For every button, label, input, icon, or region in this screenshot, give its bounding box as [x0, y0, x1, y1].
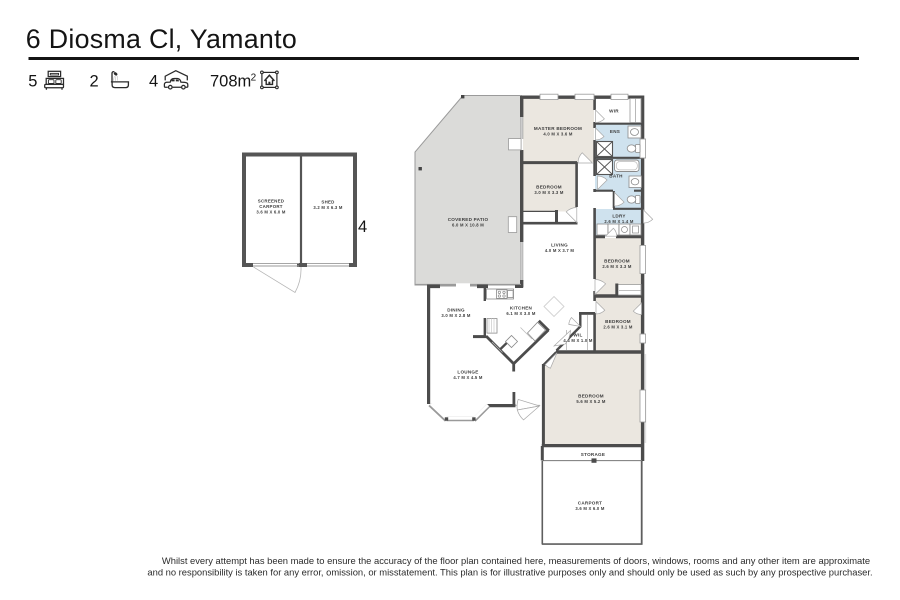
svg-text:6.0 M X 10.8 M: 6.0 M X 10.8 M [452, 223, 484, 228]
svg-text:2: 2 [251, 73, 257, 84]
svg-text:LIVING: LIVING [551, 243, 568, 248]
svg-text:708m: 708m [210, 73, 251, 91]
svg-text:BATH: BATH [609, 174, 623, 179]
svg-text:3.0 M X 3.3 M: 3.0 M X 3.3 M [534, 190, 564, 195]
svg-text:4.4 M X 1.0 M: 4.4 M X 1.0 M [563, 338, 593, 343]
svg-text:WIR: WIR [609, 109, 619, 114]
svg-text:KITCHEN: KITCHEN [510, 306, 533, 311]
svg-text:SHED: SHED [321, 200, 334, 205]
svg-text:5: 5 [28, 73, 37, 91]
svg-text:ENS: ENS [610, 129, 620, 134]
svg-text:CARPORT: CARPORT [259, 204, 283, 209]
svg-text:3.0 M X 2.8 M: 3.0 M X 2.8 M [441, 313, 471, 318]
svg-text:3.2 M X 6.3 M: 3.2 M X 6.3 M [313, 205, 343, 210]
svg-text:5.6 M X 5.2 M: 5.6 M X 5.2 M [576, 399, 606, 404]
svg-text:MASTER BEDROOM: MASTER BEDROOM [534, 126, 582, 131]
svg-text:DINING: DINING [447, 308, 465, 313]
svg-text:COVERED PATIO: COVERED PATIO [448, 217, 489, 222]
svg-text:STORAGE: STORAGE [581, 452, 605, 457]
svg-text:3.6 M X 6.0 M: 3.6 M X 6.0 M [256, 210, 286, 215]
svg-text:4: 4 [358, 218, 367, 236]
svg-text:2.6 M X 3.1 M: 2.6 M X 3.1 M [603, 325, 633, 330]
svg-text:6 Diosma Cl, Yamanto: 6 Diosma Cl, Yamanto [26, 24, 297, 54]
svg-text:WIL: WIL [573, 333, 582, 338]
svg-text:2.6 M X 3.3 M: 2.6 M X 3.3 M [602, 264, 632, 269]
svg-text:6.1 M X 3.0 M: 6.1 M X 3.0 M [506, 311, 536, 316]
svg-text:3.6 M X 6.0 M: 3.6 M X 6.0 M [575, 506, 605, 511]
svg-text:LOUNGE: LOUNGE [457, 370, 478, 375]
svg-text:2: 2 [90, 73, 99, 91]
svg-text:4.7 M X 4.5 M: 4.7 M X 4.5 M [453, 375, 483, 380]
svg-text:CARPORT: CARPORT [578, 501, 602, 506]
svg-text:and no responsibility is taken: and no responsibility is taken for any e… [147, 567, 872, 578]
svg-text:4.0 M X 3.6 M: 4.0 M X 3.6 M [543, 132, 573, 137]
svg-text:LDRY: LDRY [612, 214, 625, 219]
svg-text:4: 4 [149, 73, 158, 91]
svg-text:BEDROOM: BEDROOM [578, 394, 604, 399]
svg-text:BEDROOM: BEDROOM [536, 185, 562, 190]
svg-text:SCREENED: SCREENED [258, 199, 284, 204]
svg-text:Whilst every attempt has been: Whilst every attempt has been made to en… [162, 555, 870, 566]
svg-text:BEDROOM: BEDROOM [604, 259, 630, 264]
svg-text:2.6 M X 1.4 M: 2.6 M X 1.4 M [604, 219, 634, 224]
svg-text:BEDROOM: BEDROOM [605, 319, 631, 324]
svg-text:4.0 M X 3.7 M: 4.0 M X 3.7 M [545, 248, 575, 253]
